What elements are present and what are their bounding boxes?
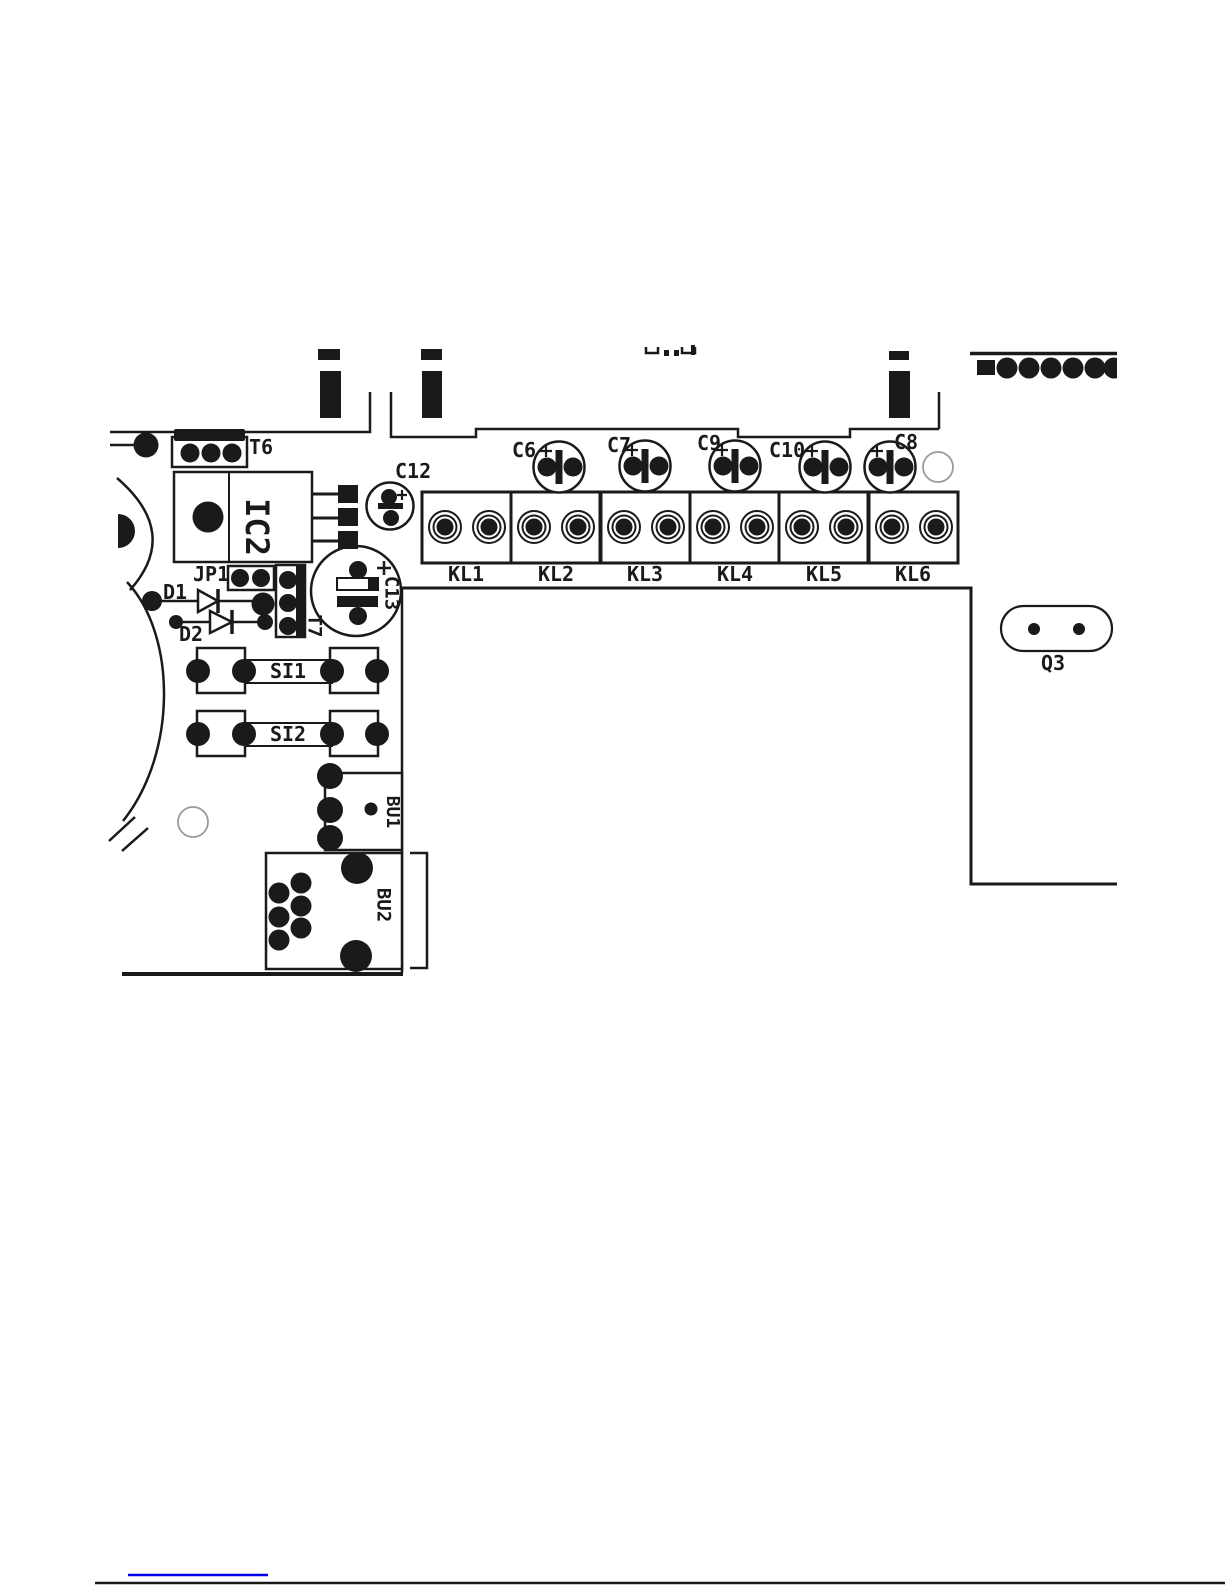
kl-block	[601, 492, 690, 563]
label-si2: SI2	[270, 724, 306, 744]
label-kl2: KL2	[538, 564, 574, 584]
label-c10: C10	[769, 440, 805, 460]
label-d2: D2	[179, 624, 203, 644]
connector-t7	[276, 565, 305, 637]
pin-row-top-right	[970, 336, 1225, 391]
electrolytic-caps	[534, 441, 916, 493]
label-c6: C6	[512, 440, 536, 460]
mounting-bars	[318, 349, 910, 418]
cap-c6	[534, 442, 585, 493]
terminal-blocks-kl	[422, 492, 958, 563]
label-c9: C9	[697, 433, 721, 453]
label-c13: C13	[382, 576, 401, 610]
label-jp1: JP1	[193, 564, 229, 584]
mounting-hole-left	[178, 807, 208, 837]
label-kl1: KL1	[448, 564, 484, 584]
label-bu1: BU1	[383, 796, 401, 829]
label-ic2: IC2	[241, 498, 273, 556]
kl-block	[779, 492, 868, 563]
cap-c10	[800, 442, 851, 493]
kl-block	[422, 492, 511, 563]
label-c8: C8	[894, 432, 918, 452]
transformer-outline-arcs	[109, 478, 164, 851]
label-t7: T7	[305, 615, 324, 638]
kl-block	[511, 492, 600, 563]
mounting-hole-right	[923, 452, 953, 482]
label-kl5: KL5	[806, 564, 842, 584]
label-kl3: KL3	[627, 564, 663, 584]
label-kl6: KL6	[895, 564, 931, 584]
label-bu2: BU2	[374, 888, 393, 922]
label-q3: Q3	[1041, 653, 1065, 673]
edge-half-pad	[118, 514, 135, 548]
connector-t6	[110, 429, 247, 467]
label-c7: C7	[607, 435, 631, 455]
cap-c12	[367, 483, 414, 530]
label-c12: C12	[395, 461, 431, 481]
pcb-layout-page: T6 IC2 C12 C6 C7 C9 C10 C8 KL1 KL2 KL3 K…	[0, 0, 1225, 1585]
label-si1: SI1	[270, 661, 306, 681]
jumper-jp1	[228, 566, 275, 616]
label-t6: T6	[249, 437, 273, 457]
label-d1: D1	[163, 582, 187, 602]
kl-block	[869, 492, 958, 563]
clipped-text-glyphs	[646, 345, 695, 356]
kl-block	[690, 492, 779, 563]
label-kl4: KL4	[717, 564, 753, 584]
crystal-q3	[1001, 606, 1112, 651]
diode-d1	[142, 589, 255, 613]
pcb-silkscreen-drawing	[0, 0, 1225, 1585]
